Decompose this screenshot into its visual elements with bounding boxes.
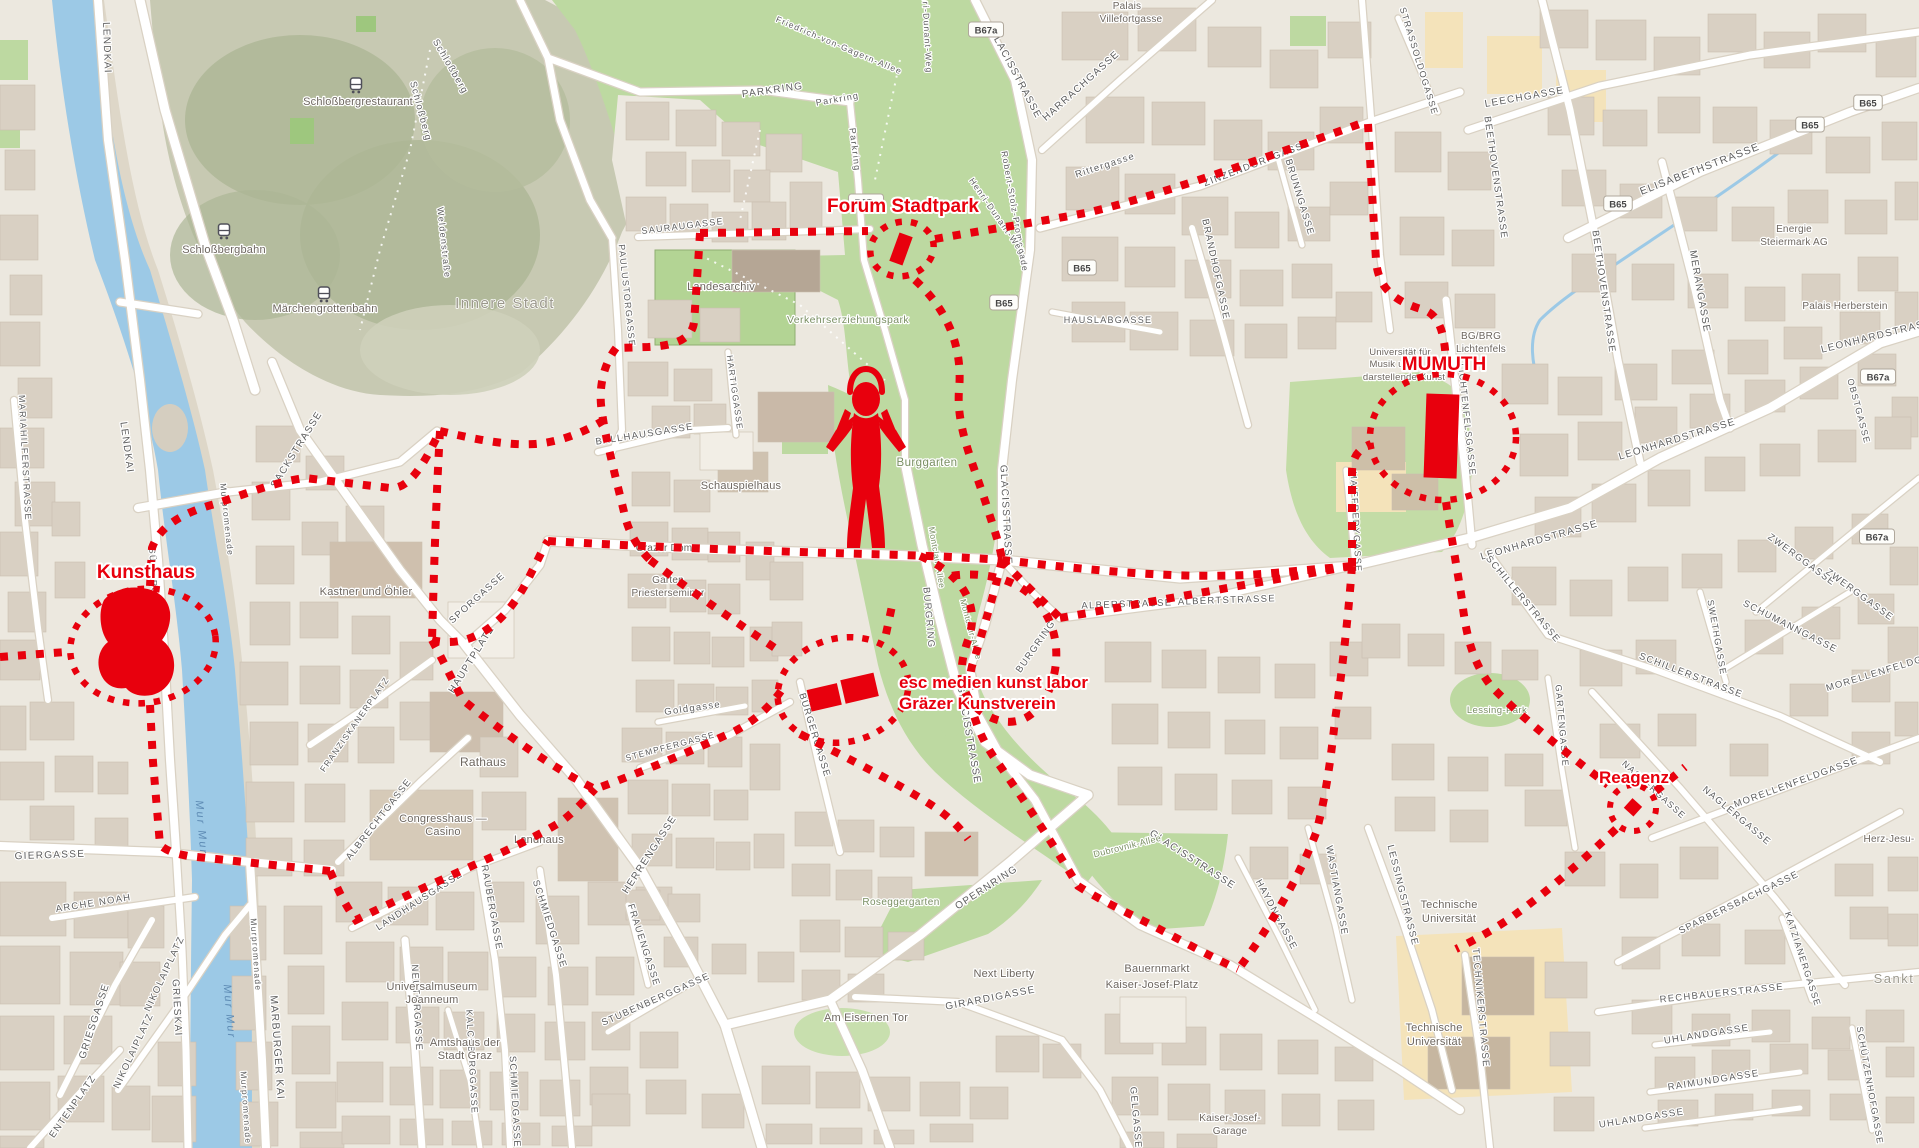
building: [300, 666, 340, 704]
building: [250, 602, 290, 645]
building: [558, 798, 618, 881]
building: [766, 134, 802, 172]
svg-text:B65: B65: [995, 299, 1013, 310]
building: [1220, 1034, 1262, 1070]
poi-label: Rathaus: [460, 755, 506, 769]
building: [628, 780, 668, 814]
building: [1818, 430, 1856, 462]
building: [1250, 847, 1288, 879]
building: [1835, 864, 1873, 896]
building: [1554, 1097, 1594, 1131]
building: [1875, 417, 1911, 449]
building: [716, 842, 750, 870]
building: [1177, 1134, 1217, 1148]
building: [1596, 20, 1646, 60]
building: [596, 957, 634, 995]
route-ref-badge: B65: [1068, 260, 1097, 275]
building: [52, 502, 80, 536]
poi-label: Casino: [425, 826, 460, 838]
building: [970, 1087, 1008, 1119]
route-ref-badge: B67a: [1861, 369, 1896, 384]
building: [674, 369, 712, 401]
building: [452, 1121, 492, 1145]
building: [646, 1080, 686, 1114]
poi-label: Kastner und Öhler: [320, 586, 413, 598]
building: [1275, 664, 1315, 698]
map-canvas[interactable]: LENDKAILENDKAIMARIAHILFERSTRASSESÜDTIROL…: [0, 0, 1919, 1148]
building: [1392, 474, 1438, 510]
building: [498, 957, 536, 997]
building: [352, 616, 390, 654]
building: [1352, 427, 1405, 470]
poi-label: Congresshaus —: [399, 813, 487, 825]
building: [640, 1032, 678, 1068]
building: [1214, 120, 1262, 160]
building: [1520, 434, 1568, 476]
building: [722, 122, 760, 156]
building: [337, 1062, 383, 1102]
building: [1812, 1017, 1850, 1049]
building: [1335, 707, 1371, 739]
building: [0, 762, 44, 800]
building: [0, 322, 40, 366]
svg-text:B67a: B67a: [975, 26, 998, 37]
building: [1895, 182, 1918, 220]
poi-label: Kaiser-Josef-Platz: [1106, 979, 1199, 991]
svg-text:B65: B65: [1609, 200, 1627, 211]
building: [1392, 744, 1434, 780]
building: [296, 1082, 336, 1128]
poi-label: Palais: [1113, 1, 1141, 12]
building: [700, 308, 740, 342]
building: [1450, 810, 1488, 842]
river-island: [152, 404, 188, 452]
building: [792, 864, 830, 896]
building: [1745, 287, 1785, 321]
building: [925, 832, 978, 876]
building: [342, 1116, 390, 1144]
building: [246, 782, 294, 822]
building: [1882, 122, 1917, 160]
building: [712, 944, 746, 974]
building: [1278, 1040, 1318, 1074]
building: [762, 1066, 810, 1104]
building: [1525, 790, 1567, 826]
building: [758, 952, 794, 982]
building: [1292, 264, 1332, 298]
svg-text:B67a: B67a: [1867, 373, 1890, 384]
building: [772, 622, 802, 656]
building: [1448, 152, 1491, 190]
building: [256, 546, 294, 584]
building: [1888, 914, 1918, 946]
building: [95, 818, 128, 846]
building: [632, 627, 670, 661]
building: [1620, 864, 1658, 898]
building: [342, 1002, 388, 1040]
poi-label: Schauspielhaus: [701, 480, 782, 492]
poi-label: Technische: [1405, 1022, 1462, 1034]
park-label: Burggarten: [897, 457, 958, 469]
building: [0, 1016, 54, 1070]
route-ref-badge: B65: [990, 295, 1019, 310]
route-ref-badge: B65: [1854, 95, 1883, 110]
building: [628, 362, 668, 396]
building: [1760, 444, 1800, 476]
building: [1395, 797, 1435, 831]
building: [436, 892, 474, 930]
building: [1728, 340, 1768, 374]
building: [845, 927, 883, 957]
reagenz-label: Reagenz: [1599, 768, 1669, 787]
building: [1502, 364, 1548, 404]
building: [288, 966, 324, 1014]
building: [1826, 137, 1870, 173]
building: [734, 170, 770, 202]
park-label: Roseggergarten: [862, 897, 939, 908]
building: [1280, 727, 1318, 759]
building: [1866, 1010, 1904, 1042]
building: [632, 472, 670, 506]
poi-label: Steiermark AG: [1760, 237, 1828, 248]
building: [1125, 247, 1175, 287]
building: [672, 784, 710, 816]
building: [1162, 650, 1206, 688]
building: [880, 827, 914, 857]
building: [770, 562, 803, 600]
poi-label: Technische: [1420, 899, 1477, 911]
building: [10, 275, 42, 315]
area-label: Sankt: [1874, 971, 1915, 986]
route-ref-badge: B65: [1604, 196, 1633, 211]
building: [1745, 930, 1785, 964]
park-label: Lessing-Park: [1467, 705, 1527, 716]
building: [1245, 324, 1287, 358]
building: [800, 920, 840, 952]
svg-text:B65: B65: [1801, 121, 1819, 132]
building: [240, 662, 288, 705]
building: [1545, 962, 1587, 998]
building: [0, 215, 38, 260]
building: [592, 1094, 630, 1126]
building: [1830, 1094, 1866, 1120]
building: [300, 1132, 344, 1148]
building: [1235, 212, 1279, 248]
poi-label: Universität: [1422, 913, 1476, 925]
building: [1168, 712, 1210, 748]
building: [674, 632, 710, 664]
forum-stadtpark-label: Forum Stadtpark: [827, 196, 979, 217]
building: [700, 432, 753, 470]
building: [1338, 1100, 1374, 1130]
building: [1738, 540, 1776, 572]
building: [1298, 317, 1336, 349]
building: [30, 806, 74, 840]
esc-label-line1: esc medien kunst labor: [899, 673, 1088, 692]
poi-label: Kaiser-Josef-: [1199, 1113, 1261, 1124]
building: [1895, 702, 1918, 736]
building: [758, 392, 834, 442]
building: [1362, 624, 1400, 658]
building: [1886, 1097, 1914, 1123]
building: [1270, 50, 1318, 88]
building: [712, 637, 744, 667]
street-label: LENDKAI: [100, 22, 113, 74]
building: [1502, 650, 1538, 680]
building: [1118, 767, 1162, 805]
route-ref-badge: B67a: [1860, 529, 1895, 544]
poi-label: BG/BRG: [1461, 331, 1501, 342]
building: [1112, 704, 1158, 744]
poi-label: Märchengrottenbahn: [272, 303, 377, 315]
building: [648, 300, 692, 338]
building: [1395, 132, 1441, 172]
building: [5, 150, 35, 190]
building: [55, 756, 93, 792]
building: [1648, 470, 1690, 506]
esc-label-line2: Gräzer Kunstverein: [899, 694, 1056, 713]
poi-label: Joanneum: [406, 994, 459, 1006]
building: [836, 870, 872, 900]
building: [1632, 264, 1674, 300]
building: [292, 1026, 330, 1074]
poi-label: Stadt Graz: [438, 1050, 493, 1062]
street-label: HAUSLABGASSE: [1064, 315, 1153, 325]
building: [1558, 377, 1602, 415]
poi-label: Amtshaus der: [430, 1037, 500, 1049]
building: [838, 820, 874, 852]
building: [1225, 720, 1265, 754]
building: [1658, 97, 1700, 133]
building: [1603, 110, 1647, 146]
building: [1550, 1032, 1590, 1066]
building: [766, 1124, 812, 1144]
building: [1448, 757, 1488, 791]
building: [400, 702, 433, 740]
building: [540, 1080, 580, 1116]
building: [1790, 684, 1828, 716]
poi-label: Garage: [1213, 1126, 1248, 1137]
poi-label: Herz-Jesu-: [1864, 834, 1915, 845]
building: [1218, 657, 1260, 693]
building: [1208, 27, 1261, 67]
building: [1152, 102, 1205, 145]
building: [1336, 292, 1372, 322]
building: [1578, 422, 1622, 460]
building: [1888, 857, 1918, 891]
building: [1732, 207, 1774, 241]
building: [1788, 190, 1828, 223]
poi-label: Palais Herberstein: [1802, 301, 1887, 312]
area-label: Innere Stadt: [455, 295, 555, 312]
poi-label: Energie: [1776, 224, 1812, 235]
building: [1658, 714, 1696, 746]
building: [305, 784, 345, 822]
svg-text:B65: B65: [1859, 99, 1877, 110]
building: [0, 85, 35, 130]
building: [1330, 182, 1368, 215]
building: [98, 762, 128, 794]
building: [1175, 774, 1217, 810]
poi-label: Universität: [1407, 1036, 1461, 1048]
route-ref-badge: B65: [1796, 117, 1825, 132]
building: [55, 562, 85, 598]
building: [1400, 217, 1444, 255]
building: [1455, 294, 1495, 328]
poi-label: Schloßbergbahn: [182, 244, 266, 256]
building: [920, 1082, 960, 1116]
building: [1858, 257, 1898, 291]
building: [714, 790, 748, 820]
svg-text:B67a: B67a: [1866, 533, 1889, 544]
poi-label: Bauernmarkt: [1124, 963, 1189, 975]
building: [1628, 567, 1668, 601]
building: [300, 602, 338, 638]
building: [1240, 270, 1283, 306]
building: [1682, 554, 1722, 588]
building: [284, 906, 322, 954]
building: [1713, 107, 1757, 143]
building: [1850, 907, 1888, 939]
mumuth-label: MUMUTH: [1402, 354, 1486, 375]
building: [1845, 200, 1887, 234]
building: [930, 1124, 973, 1142]
building: [1708, 14, 1756, 52]
building: [1784, 327, 1822, 359]
building: [750, 744, 780, 790]
building: [358, 727, 394, 763]
building: [702, 1094, 744, 1128]
building: [1120, 997, 1186, 1043]
route-ref-badge: B67a: [969, 22, 1004, 37]
building: [676, 838, 714, 868]
svg-text:B65: B65: [1073, 264, 1091, 275]
poi-label: Am Eisernen Tor: [824, 1012, 908, 1024]
poi-label: Villefortgasse: [1100, 14, 1163, 25]
kunsthaus-label: Kunsthaus: [97, 562, 195, 583]
building: [482, 792, 526, 830]
park-label: Verkehrserziehungspark: [787, 314, 909, 326]
building: [676, 110, 716, 146]
building: [1282, 1094, 1320, 1126]
poi-label: Schloßbergrestaurant: [303, 96, 413, 108]
building: [1730, 744, 1768, 776]
poi-label: Universalmuseum: [386, 981, 477, 993]
building: [1680, 847, 1718, 879]
building: [0, 946, 60, 1004]
building: [626, 102, 669, 140]
building: [816, 1072, 860, 1108]
building: [1890, 547, 1918, 585]
building: [1570, 580, 1612, 616]
building: [390, 1067, 433, 1105]
building: [754, 834, 784, 868]
building: [646, 152, 686, 186]
building: [0, 706, 26, 750]
building: [996, 1036, 1039, 1072]
building: [1752, 1010, 1790, 1042]
building: [1705, 457, 1745, 491]
building: [250, 722, 298, 765]
poi-label: Next Liberty: [973, 968, 1034, 980]
building: [1105, 642, 1151, 682]
building: [1452, 230, 1494, 266]
building: [692, 160, 730, 192]
building: [1408, 634, 1444, 666]
building: [30, 702, 74, 740]
building: [1232, 780, 1272, 814]
building: [370, 790, 473, 860]
building: [1886, 1047, 1914, 1077]
building: [1876, 37, 1916, 77]
building: [820, 1128, 862, 1144]
building: [1505, 754, 1543, 786]
building: [0, 1082, 50, 1130]
building: [790, 182, 822, 234]
building: [346, 942, 394, 982]
